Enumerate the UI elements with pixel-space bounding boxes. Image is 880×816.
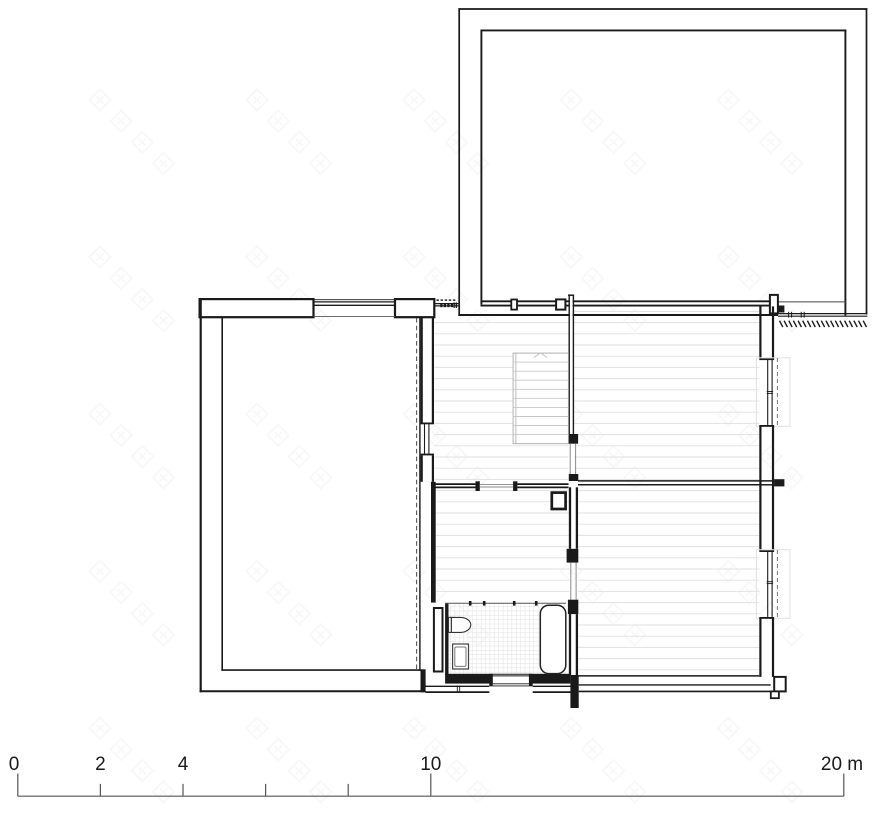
- svg-text:4: 4: [178, 754, 189, 775]
- svg-text:0: 0: [9, 754, 20, 775]
- svg-text:2: 2: [95, 754, 106, 775]
- svg-text:20 m: 20 m: [821, 754, 863, 775]
- svg-text:10: 10: [420, 754, 441, 775]
